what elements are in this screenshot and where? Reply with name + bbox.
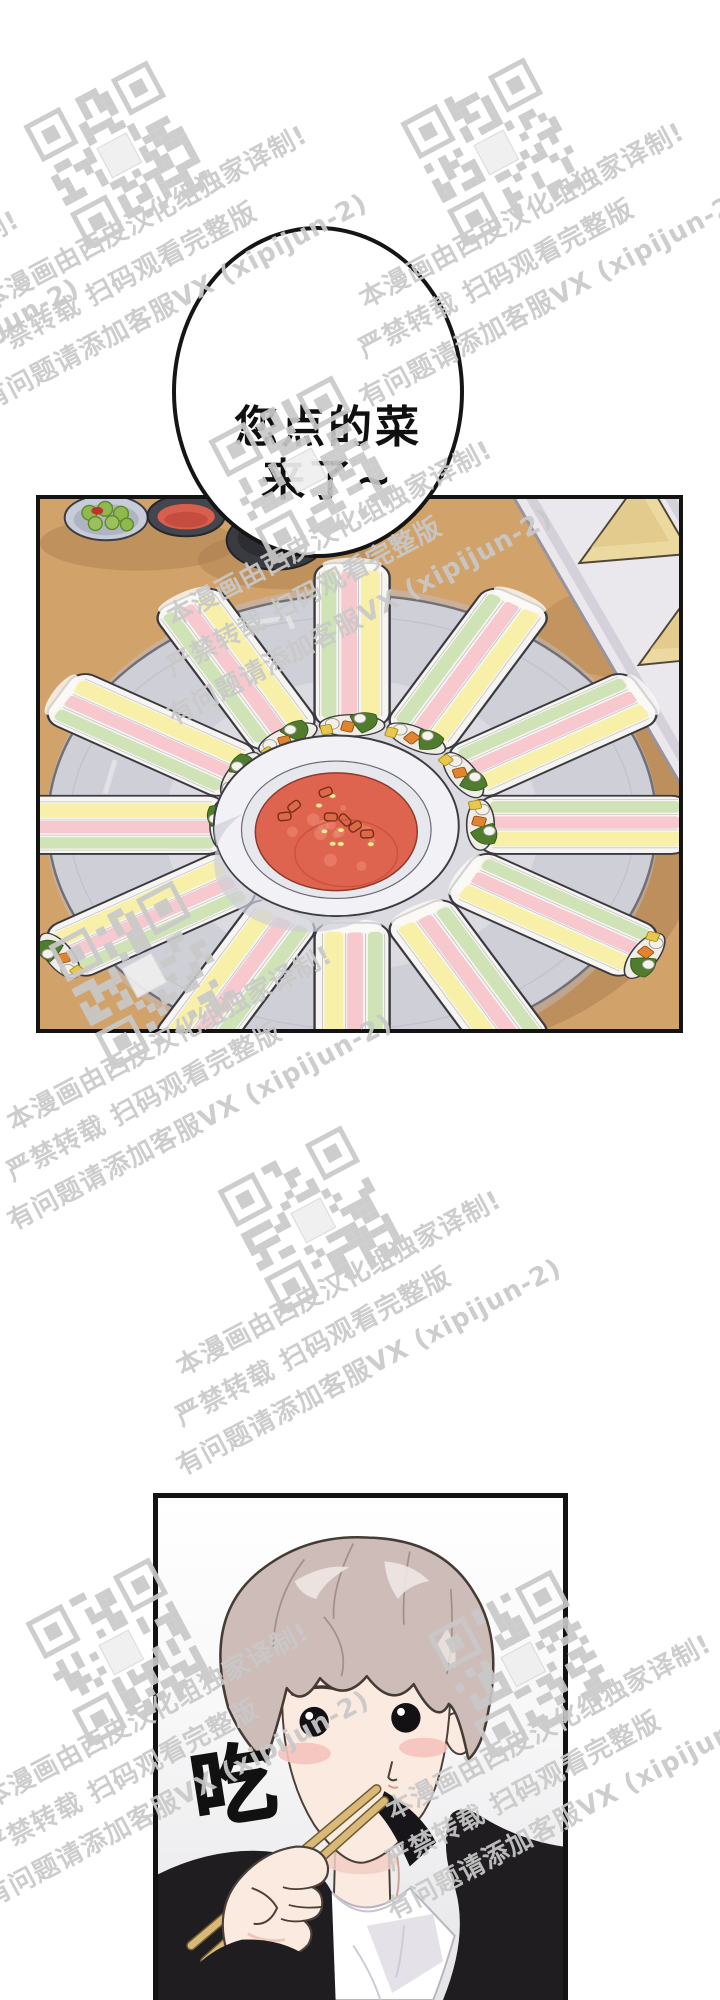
speech-bubble-text-line2: 来了~ xyxy=(261,455,395,508)
spring-roll xyxy=(315,919,390,1029)
character-illustration: 吃 xyxy=(158,1498,563,2000)
spring-roll xyxy=(40,796,238,854)
panel-character-eating: 吃 xyxy=(153,1493,568,2000)
watermark-text-line3: 有问题请添加客服VX (xipijun-2) xyxy=(0,1003,398,1238)
spring-roll xyxy=(315,558,390,736)
spring-roll xyxy=(467,796,679,854)
speech-bubble-text-line1: 您点的菜 xyxy=(234,402,422,455)
watermark-text-line2: 严禁转载 扫码观看完整版 xyxy=(168,1257,456,1434)
panel-food-scene xyxy=(36,495,683,1033)
watermark-text-line3: 有问题请添加客服VX (xipijun-2) xyxy=(169,1248,567,1483)
blush-left xyxy=(278,1743,331,1765)
qr-code-icon xyxy=(23,60,212,249)
watermark-text-line3: 有问题请添加客服VX (xipijun-2) xyxy=(0,268,85,503)
right-eye xyxy=(391,1703,420,1733)
watermark-text-line2: 严禁转载 扫码观看完整版 xyxy=(0,1012,287,1189)
food-illustration xyxy=(40,499,679,1029)
comic-page: 您点的菜 来了~ xyxy=(0,0,720,2000)
watermark-unit: 本漫画由西皮汉化组独家译制!严禁转载 扫码观看完整版有问题请添加客服VX (xi… xyxy=(400,0,720,344)
cucumber-bowl xyxy=(65,499,148,540)
speech-bubble: 您点的菜 来了~ xyxy=(172,226,464,558)
blush-right xyxy=(399,1738,448,1758)
qr-code-icon xyxy=(400,57,589,246)
left-eye xyxy=(300,1707,329,1737)
watermark-text-line1: 本漫画由西皮汉化组独家译制! xyxy=(0,200,25,403)
watermark-text-line1: 本漫画由西皮汉化组独家译制! xyxy=(169,1180,508,1383)
qr-code-icon xyxy=(217,1125,406,1314)
sfx-eat-text: 吃 xyxy=(184,1731,282,1842)
watermark-unit: 本漫画由西皮汉化组独家译制!严禁转载 扫码观看完整版有问题请添加客服VX (xi… xyxy=(217,989,714,1412)
